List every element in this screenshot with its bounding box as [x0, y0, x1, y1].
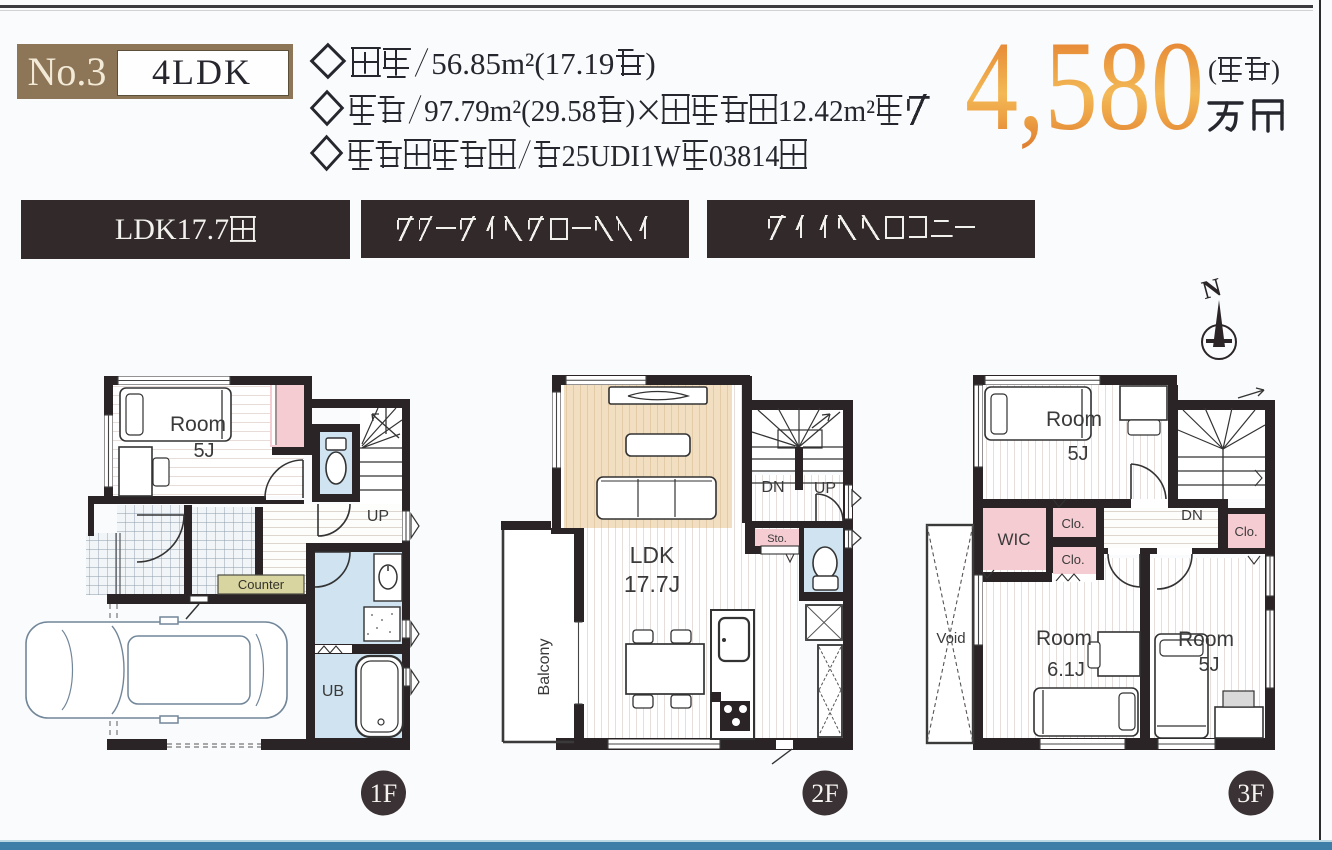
svg-text:Sto.: Sto.: [767, 533, 787, 545]
svg-text:3F: 3F: [1237, 779, 1264, 808]
svg-text:WIC: WIC: [997, 530, 1030, 549]
svg-text:LDK: LDK: [630, 542, 675, 568]
svg-text:Balcony: Balcony: [536, 639, 553, 696]
svg-text:DN: DN: [1181, 507, 1203, 524]
svg-text:1F: 1F: [370, 779, 397, 808]
svg-text:5J: 5J: [193, 440, 214, 462]
svg-text:Clo.: Clo.: [1061, 552, 1084, 567]
svg-text:Room: Room: [170, 413, 226, 436]
svg-text:2F: 2F: [811, 779, 838, 808]
svg-text:Void: Void: [936, 630, 965, 647]
svg-text:5J: 5J: [1198, 654, 1219, 676]
svg-text:5J: 5J: [1067, 443, 1088, 465]
svg-text:UP: UP: [367, 508, 389, 525]
svg-text:17.7J: 17.7J: [624, 571, 680, 597]
svg-text:Room: Room: [1036, 627, 1092, 650]
svg-text:Clo.: Clo.: [1061, 516, 1084, 531]
svg-text:Counter: Counter: [238, 577, 285, 592]
svg-text:6.1J: 6.1J: [1047, 659, 1085, 681]
svg-text:Clo.: Clo.: [1234, 524, 1257, 539]
svg-text:N: N: [1199, 272, 1225, 305]
svg-text:Room: Room: [1046, 408, 1102, 431]
svg-text:Room: Room: [1178, 628, 1234, 651]
svg-text:UB: UB: [322, 683, 344, 700]
svg-text:DN: DN: [761, 479, 784, 496]
